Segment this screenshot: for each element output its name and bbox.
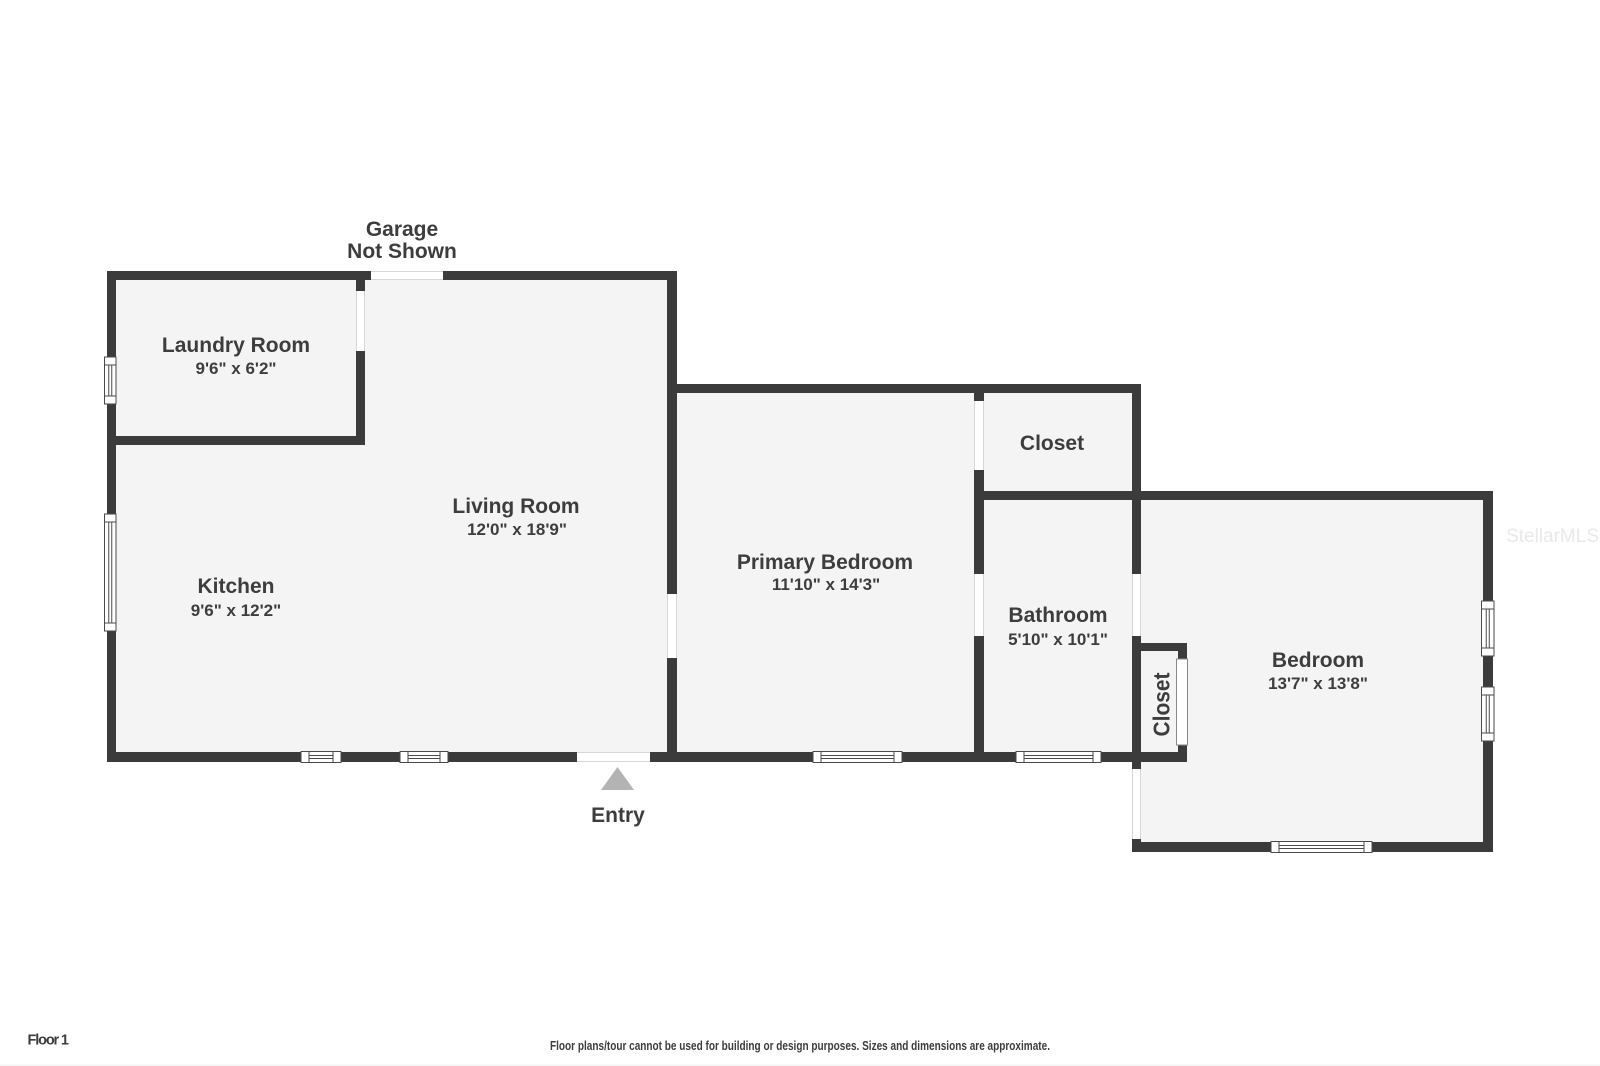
svg-text:Kitchen: Kitchen [197, 575, 274, 598]
svg-text:Closet: Closet [1149, 672, 1175, 736]
svg-text:9'6" x 12'2": 9'6" x 12'2" [191, 601, 281, 620]
svg-text:Bathroom: Bathroom [1008, 604, 1107, 627]
svg-text:11'10" x 14'3": 11'10" x 14'3" [772, 575, 880, 594]
svg-text:Living Room: Living Room [452, 495, 579, 518]
svg-text:Floor 1: Floor 1 [28, 1033, 70, 1049]
svg-text:StellarMLS: StellarMLS [1506, 526, 1599, 547]
svg-text:5'10" x 10'1": 5'10" x 10'1" [1008, 630, 1108, 649]
svg-text:Entry: Entry [591, 804, 645, 827]
svg-text:Garage: Garage [366, 218, 438, 241]
svg-text:Laundry Room: Laundry Room [162, 334, 310, 357]
svg-text:Not Shown: Not Shown [347, 240, 457, 263]
svg-text:9'6" x 6'2": 9'6" x 6'2" [196, 359, 277, 378]
svg-text:Bedroom: Bedroom [1272, 649, 1364, 672]
svg-text:13'7" x 13'8": 13'7" x 13'8" [1268, 674, 1368, 693]
svg-text:12'0" x 18'9": 12'0" x 18'9" [467, 520, 567, 539]
svg-text:Primary Bedroom: Primary Bedroom [737, 551, 913, 574]
svg-text:Closet: Closet [1020, 432, 1084, 455]
svg-text:Floor plans/tour cannot be use: Floor plans/tour cannot be used for buil… [550, 1038, 1050, 1053]
